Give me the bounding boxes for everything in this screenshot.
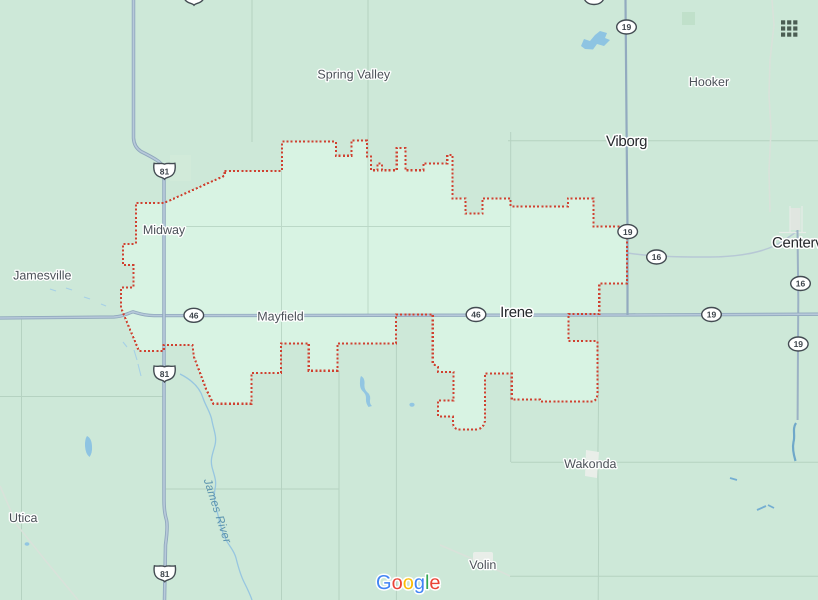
svg-text:19: 19 [707, 310, 717, 320]
svg-text:Volin: Volin [469, 558, 496, 572]
svg-text:Midway: Midway [143, 223, 186, 237]
svg-text:19: 19 [623, 227, 633, 237]
svg-text:Google: Google [376, 572, 441, 594]
svg-text:Hooker: Hooker [689, 75, 729, 89]
svg-text:Centerville: Centerville [772, 235, 818, 252]
svg-text:Spring Valley: Spring Valley [317, 68, 390, 82]
svg-text:81: 81 [160, 369, 170, 379]
svg-text:46: 46 [471, 310, 481, 320]
svg-text:16: 16 [652, 252, 662, 262]
svg-text:46: 46 [189, 311, 199, 321]
svg-text:Wakonda: Wakonda [564, 457, 616, 471]
svg-text:Viborg: Viborg [606, 133, 647, 150]
svg-text:Irene: Irene [500, 304, 533, 321]
svg-text:Utica: Utica [9, 511, 38, 525]
svg-text:Mayfield: Mayfield [257, 310, 304, 324]
svg-text:81: 81 [160, 166, 170, 176]
svg-text:19: 19 [622, 22, 632, 32]
svg-text:16: 16 [796, 279, 806, 289]
svg-text:Jamesville: Jamesville [13, 268, 71, 282]
svg-text:81: 81 [160, 569, 170, 579]
svg-text:19: 19 [794, 339, 804, 349]
